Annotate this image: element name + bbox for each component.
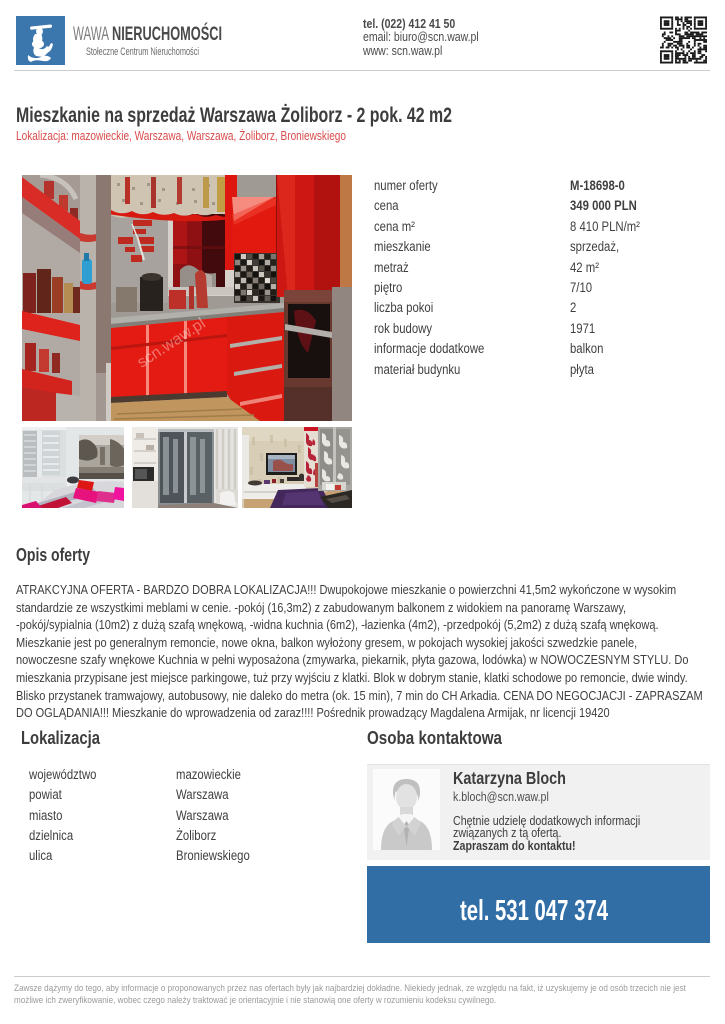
svg-text:tel. 531 047 374: tel. 531 047 374 — [460, 895, 608, 927]
svg-text:Katarzyna Bloch: Katarzyna Bloch — [453, 768, 566, 788]
svg-text:Lokalizacja: Lokalizacja — [21, 727, 101, 748]
svg-text:Osoba kontaktowa: Osoba kontaktowa — [367, 727, 503, 748]
svg-text:Lokalizacja: mazowieckie, Wars: Lokalizacja: mazowieckie, Warszawa, Wars… — [16, 129, 346, 143]
svg-text:Mieszkanie na sprzedaż Warszaw: Mieszkanie na sprzedaż Warszawa Żoliborz… — [16, 103, 452, 127]
svg-text:Stołeczne Centrum Nieruchomośc: Stołeczne Centrum Nieruchomości — [86, 46, 199, 58]
svg-text:Opis oferty: Opis oferty — [16, 544, 91, 565]
svg-text:WAWA: WAWA — [73, 24, 109, 45]
svg-text:NIERUCHOMOŚCI: NIERUCHOMOŚCI — [112, 23, 222, 45]
